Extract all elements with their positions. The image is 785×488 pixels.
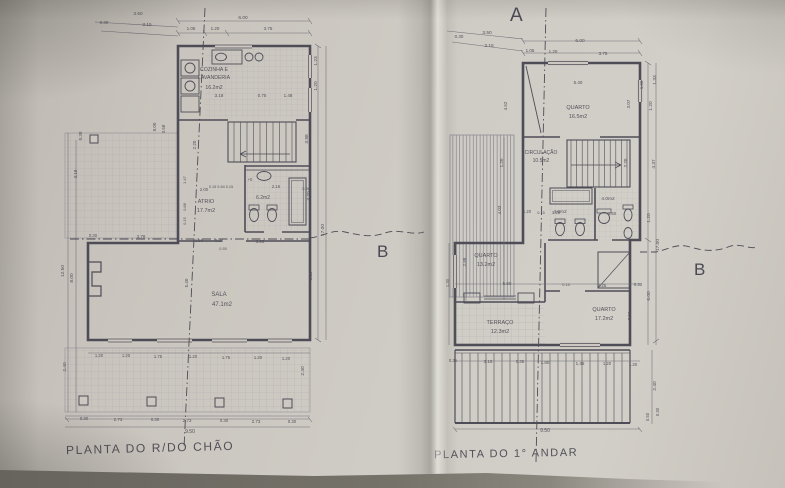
ground-floor-plan: 3.500.303.156.001.051.203.751.231.203.98… <box>60 8 424 448</box>
annotation-label: 17.00 <box>320 224 326 236</box>
annotation-label: 3.50 <box>133 11 143 17</box>
annotation-label: 17.7m2 <box>197 208 215 214</box>
annotation-label: 0.30 <box>288 419 297 424</box>
annotation-label: 0.30 <box>78 131 83 140</box>
annotation-label: 9.50 <box>185 429 195 435</box>
annotation-label: 1.20 <box>313 81 319 91</box>
annotation-label: 2.40 <box>652 381 658 391</box>
annotation-label: 1.20 <box>646 213 652 223</box>
annotation-label: 2.40 <box>300 366 306 376</box>
fireplace <box>88 262 101 296</box>
section-marker-a: A <box>510 5 523 27</box>
annotation-label: 0.55 <box>219 247 226 251</box>
annotation-label: 4.37 <box>651 159 657 169</box>
annotation-label: 4.0m2 <box>601 196 615 202</box>
annotation-label: 17.2m2 <box>595 316 613 322</box>
annotation-label: +0 <box>248 177 253 182</box>
annotation-label: 1.75 <box>154 354 163 359</box>
annotation-label: CIRCULAÇÃO <box>525 149 558 156</box>
annotation-label: 2.40 <box>62 362 68 372</box>
annotation-label: 16.2m2 <box>205 85 222 91</box>
annotation-label: 6.2m2 <box>256 195 270 201</box>
annotation-label: 17.00 <box>655 239 661 251</box>
annotation-label: 1.20 <box>189 354 198 359</box>
annotation-label: 0.35 <box>516 359 525 364</box>
annotation-label: 0.30 <box>634 282 643 287</box>
annotation-label: 0.30 <box>151 417 160 422</box>
annotation-label: 1.20 <box>122 353 131 358</box>
annotation-label: 1.20 <box>648 101 654 111</box>
annotation-label: 2.20 <box>192 140 197 149</box>
annotation-label: 1.20 <box>523 209 532 214</box>
annotation-label: 12.50 <box>60 265 66 277</box>
annotation-label: 6.39 <box>308 271 314 281</box>
annotation-label: 1.20 <box>603 361 612 366</box>
annotation-label: 0.30 <box>655 407 660 416</box>
annotation-label: SALA <box>211 292 226 298</box>
annotation-label: 3.78 <box>137 234 146 239</box>
annotation-label: 6.00 <box>238 15 248 21</box>
roof-hatch <box>450 135 514 297</box>
annotation-label: 3.25 <box>256 239 265 244</box>
annotation-label: 10.5m2 <box>533 158 550 164</box>
annotation-label: 3.18 <box>73 169 78 178</box>
staircase <box>567 140 630 187</box>
annotation-label: 3.50 <box>482 30 492 36</box>
annotation-label: 0.15 <box>562 283 569 287</box>
floor-plan-drawing: 3.500.303.156.001.051.203.751.231.203.98… <box>0 0 785 488</box>
terrace-tiles <box>65 348 310 416</box>
annotation-label: QUARTO <box>566 105 590 111</box>
annotation-label: 0.30 <box>455 34 464 39</box>
annotation-label: ATRIO <box>198 199 215 205</box>
annotation-label: 1.80 <box>541 360 550 365</box>
annotation-label: 0.24 <box>215 238 224 243</box>
annotation-label: 16.5m2 <box>569 114 587 120</box>
annotation-label: 1.47 <box>182 175 187 184</box>
annotation-label: 0.15 <box>182 216 187 225</box>
annotation-label: 1.23 <box>313 56 319 66</box>
annotation-label: 0.15 0.84 0.15 <box>209 185 233 189</box>
annotation-label: 1.75 <box>222 355 231 360</box>
annotation-label: 3.15 <box>484 359 493 364</box>
annotation-label: 0.30 <box>80 416 89 421</box>
annotation-label: 3.15 <box>484 43 494 49</box>
patio-tiles <box>65 133 178 238</box>
annotation-label: 1.20 <box>254 355 263 360</box>
annotation-label: 8.00 <box>69 273 75 283</box>
annotation-label: 1.20 <box>211 26 220 31</box>
annotation-label: 3.07 <box>626 99 631 108</box>
annotation-label: 2.73 <box>114 417 123 422</box>
annotation-label: 0.30 <box>100 20 109 25</box>
annotation-label: QUARTO <box>474 253 498 259</box>
annotation-label: 3.25 <box>598 283 607 288</box>
annotation-label: 6.00 <box>646 291 652 301</box>
annotation-label: 0.75 <box>258 93 267 98</box>
annotation-label: 2.73 <box>183 418 192 423</box>
annotation-label: 13.2m2 <box>477 262 495 268</box>
photographed-floor-plan-sheet: 3.500.303.156.001.051.203.751.231.203.98… <box>0 0 785 488</box>
annotation-label: 3.98 <box>304 134 310 144</box>
annotation-label: 2.73 <box>252 419 261 424</box>
annotation-label: 3.20 <box>306 191 312 201</box>
section-marker-b-left: B <box>377 242 388 262</box>
annotation-label: 1.25 <box>552 210 561 215</box>
annotation-label: 5.50 <box>503 281 512 286</box>
annotation-label: 0.30 <box>89 233 98 238</box>
annotation-label: 2.20 <box>623 158 628 167</box>
annotation-label: 0.15 <box>537 211 544 215</box>
annotation-label: 0.88 <box>182 202 187 211</box>
staircase <box>228 122 296 162</box>
annotation-label: LAVANDERIA <box>198 75 231 81</box>
annotation-label: 2.88 <box>462 257 467 266</box>
annotation-label: 6.00 <box>575 38 585 44</box>
annotation-label: 5.40 <box>184 278 189 287</box>
annotation-label: 0.50 <box>645 412 650 421</box>
annotation-label: 1.48 <box>284 93 293 98</box>
annotation-label: 4.52 <box>503 101 508 110</box>
annotation-label: 1.30 <box>639 80 644 89</box>
annotation-label: 3.75 <box>599 51 608 56</box>
ramp-line <box>526 66 541 133</box>
annotation-label: COZINHA E <box>200 67 228 73</box>
annotation-label: 9.50 <box>540 428 550 434</box>
annotation-label: 1.20 <box>499 158 504 167</box>
annotation-label: 1.20 <box>549 49 558 54</box>
annotation-label: 1.30 <box>445 278 450 287</box>
annotation-label: 47.1m2 <box>212 302 233 308</box>
annotation-label: 1.45 <box>576 361 585 366</box>
annotation-label: 5.40 <box>574 80 583 85</box>
annotation-label: 3.56 <box>627 311 632 320</box>
annotation-label: 2.00 <box>200 187 209 192</box>
annotation-label: 0.36 <box>302 187 309 191</box>
annotation-label: 1.50 <box>195 238 204 243</box>
annotation-label: 8.00 <box>152 122 157 131</box>
annotation-label: 3.15 <box>142 22 152 28</box>
annotation-label: QUARTO <box>592 307 616 313</box>
annotation-label: 0.35 <box>449 358 458 363</box>
annotation-label: 2.16 <box>272 184 281 189</box>
annotation-label: 1.33 <box>652 75 658 85</box>
first-floor-plan: 3.500.303.156.001.051.203.755.401.301.33… <box>445 8 758 462</box>
first-floor-title: PLANTA DO 1° ANDAR <box>434 447 578 462</box>
annotation-label: 4.03 <box>497 205 502 214</box>
annotation-label: 1.20 <box>629 362 638 367</box>
annotation-label: 1.05 <box>187 26 196 31</box>
annotation-label: 3.18 <box>215 93 224 98</box>
annotation-label: 1.20 <box>95 353 104 358</box>
annotation-label: TERRAÇO <box>487 320 515 326</box>
annotation-label: 1.20 <box>282 356 291 361</box>
annotation-label: 3.75 <box>264 26 273 31</box>
annotation-label: 0.30 <box>220 418 229 423</box>
annotation-label: 12.3m2 <box>491 329 509 335</box>
section-marker-b-right: B <box>694 260 705 280</box>
annotation-label: 3.58 <box>161 124 166 133</box>
annotation-label: 1.05 <box>526 48 535 53</box>
annotation-label: 1.50 <box>608 211 617 216</box>
